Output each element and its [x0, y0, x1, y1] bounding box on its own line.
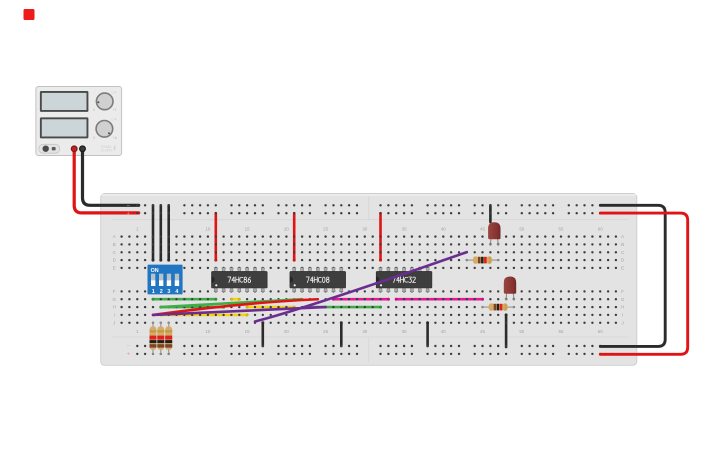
svg-text:B: B [113, 242, 116, 247]
svg-text:D: D [621, 258, 624, 263]
svg-text:25: 25 [323, 227, 328, 232]
svg-text:+: + [127, 352, 130, 358]
svg-text:J: J [621, 320, 623, 325]
svg-text:H: H [621, 305, 624, 310]
svg-text:+1: +1 [113, 108, 117, 112]
svg-text:+: + [127, 211, 130, 217]
svg-text:0: 0 [93, 108, 95, 112]
svg-text:□ +: □ + [112, 91, 117, 95]
svg-text:20: 20 [284, 227, 289, 232]
svg-text:D: D [113, 258, 116, 263]
svg-text:3: 3 [167, 289, 170, 295]
svg-text:−: − [127, 203, 130, 209]
svg-text:G: G [621, 297, 625, 302]
svg-text:ON: ON [151, 268, 159, 274]
svg-text:C: C [621, 250, 624, 255]
svg-text:H: H [113, 305, 116, 310]
svg-text:50: 50 [519, 227, 524, 232]
svg-text:A: A [113, 234, 116, 239]
svg-text:E: E [621, 266, 624, 271]
svg-text:G: G [112, 297, 116, 302]
svg-text:1: 1 [152, 289, 155, 295]
svg-text:50: 50 [519, 329, 524, 334]
svg-text:C: C [113, 250, 116, 255]
svg-text:72-2540: 72-2540 [100, 148, 112, 152]
svg-text:55: 55 [559, 227, 564, 232]
svg-text:+A: +A [113, 136, 118, 140]
svg-text:B: B [621, 242, 624, 247]
svg-text:35: 35 [402, 329, 407, 334]
svg-text:45: 45 [480, 227, 485, 232]
svg-text:30: 30 [362, 329, 367, 334]
svg-text:A: A [621, 234, 624, 239]
svg-text:−: − [127, 344, 130, 350]
svg-text:0: 0 [93, 136, 95, 140]
svg-text:□ +: □ + [112, 117, 117, 121]
svg-text:4: 4 [175, 289, 178, 295]
svg-text:60: 60 [598, 227, 603, 232]
svg-text:15: 15 [245, 227, 250, 232]
svg-text:30: 30 [362, 227, 367, 232]
svg-text:E: E [113, 266, 116, 271]
svg-text:I: I [114, 313, 115, 318]
svg-text:20: 20 [284, 329, 289, 334]
svg-text:15: 15 [245, 329, 250, 334]
svg-text:25: 25 [323, 329, 328, 334]
svg-text:35: 35 [402, 227, 407, 232]
svg-text:F: F [621, 289, 624, 294]
svg-text:I: I [622, 313, 623, 318]
svg-text:40: 40 [441, 227, 446, 232]
svg-text:45: 45 [480, 329, 485, 334]
svg-text:55: 55 [559, 329, 564, 334]
svg-text:60: 60 [598, 329, 603, 334]
svg-text:J: J [113, 320, 115, 325]
svg-text:2: 2 [160, 289, 163, 295]
svg-text:40: 40 [441, 329, 446, 334]
svg-text:F: F [113, 289, 116, 294]
svg-text:10: 10 [205, 329, 210, 334]
svg-text:10: 10 [205, 227, 210, 232]
